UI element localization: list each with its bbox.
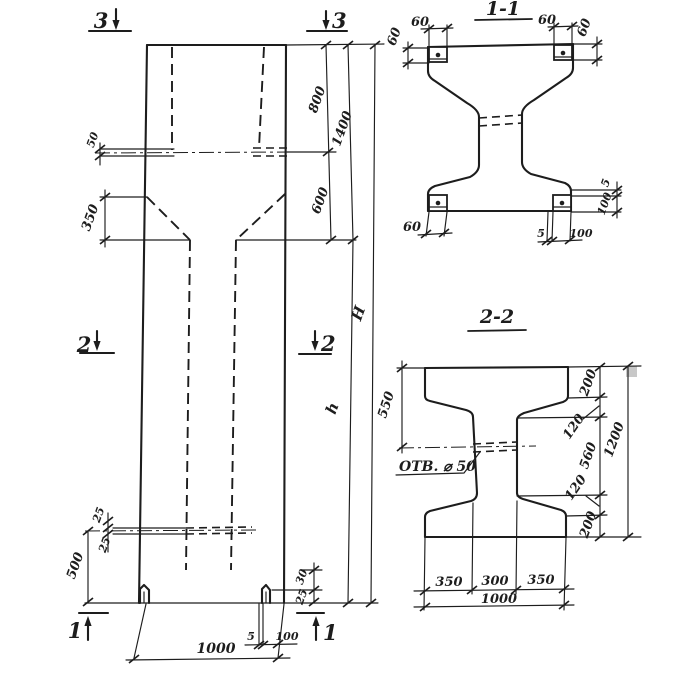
dim-1-1-bottom-5: 5 (537, 227, 545, 240)
dim-1-1-bottom-left-60: 60 (403, 220, 421, 235)
dim-plate-25-lower: 25 (96, 535, 114, 555)
dim-2-2-right-120-top: 120 (560, 412, 588, 443)
dim-height-H: H (347, 303, 369, 324)
elevation-embedded-plate-top (95, 148, 290, 156)
dim-2-2-bottom-1000: 1000 (481, 592, 517, 607)
technical-drawing-canvas: 50 350 800 600 1400 h (0, 0, 700, 700)
dim-2-2-right-1200: 1200 (601, 420, 627, 459)
section-2-2-title: 2-2 (479, 306, 514, 328)
dim-1-1-right-60: 60 (575, 17, 595, 39)
dim-width-1000: 1000 (197, 641, 236, 657)
dim-2-2-right-560: 560 (577, 440, 600, 471)
dim-1-1-left-60: 60 (385, 26, 405, 48)
drawing-sheet: 50 350 800 600 1400 h (0, 0, 700, 700)
dim-2-2-left-550: 550 (375, 390, 398, 420)
dim-seg-600: 600 (309, 185, 332, 216)
elevation-hidden-lines (147, 47, 285, 570)
dim-2-2-right-120-bottom: 120 (562, 473, 590, 504)
marker-1-left: 1 (68, 618, 83, 643)
section-2-2-hole: ОТВ. ⌀ 50 (396, 442, 536, 475)
section-2-2-dimensions: 550 200 120 560 120 200 1200 (375, 361, 641, 611)
dim-1-1-bottom-100: 100 (570, 227, 593, 240)
marker-3-right: 3 (332, 8, 347, 33)
marker-3-left: 3 (94, 8, 109, 33)
dim-total-1400: 1400 (329, 109, 355, 148)
dim-1-1-right-5: 5 (598, 177, 613, 189)
dim-base-5: 5 (247, 630, 255, 643)
section-1-1-embedded-plates (429, 45, 572, 211)
dim-base-100: 100 (276, 630, 299, 643)
marker-1-right: 1 (323, 620, 338, 645)
dim-foot-500: 500 (64, 550, 87, 581)
dim-plate-offset-50: 50 (84, 130, 102, 149)
section-1-1-title: 1-1 (486, 0, 520, 20)
section-1-1-view: 1-1 60 60 (385, 0, 622, 245)
dim-2-2-bottom-350-right: 350 (527, 573, 554, 588)
dim-2-2-right-200-top: 200 (577, 367, 601, 399)
section-2-2-view: 2-2 ОТВ. ⌀ 50 550 (375, 306, 641, 611)
dim-2-2-right-200-bottom: 200 (577, 509, 601, 541)
section-1-1-outline (428, 44, 573, 211)
dim-height-h: h (322, 400, 343, 416)
dim-2-2-bottom-300: 300 (481, 574, 508, 589)
dim-2-2-bottom-350-left: 350 (435, 575, 462, 590)
dim-seg-800: 800 (306, 84, 329, 115)
dim-1-1-right-100: 100 (595, 190, 615, 216)
dim-1-1-top-left-60: 60 (411, 15, 429, 30)
dim-plate-25-upper: 25 (90, 505, 108, 525)
elevation-view: 50 350 800 600 1400 h (64, 8, 384, 663)
dim-1-1-top-right-60: 60 (538, 13, 556, 28)
dim-taper-350: 350 (79, 202, 102, 233)
section-1-1-hole-hidden (479, 115, 522, 126)
marker-2-right: 2 (320, 331, 336, 356)
section-2-2-outline (425, 367, 568, 537)
